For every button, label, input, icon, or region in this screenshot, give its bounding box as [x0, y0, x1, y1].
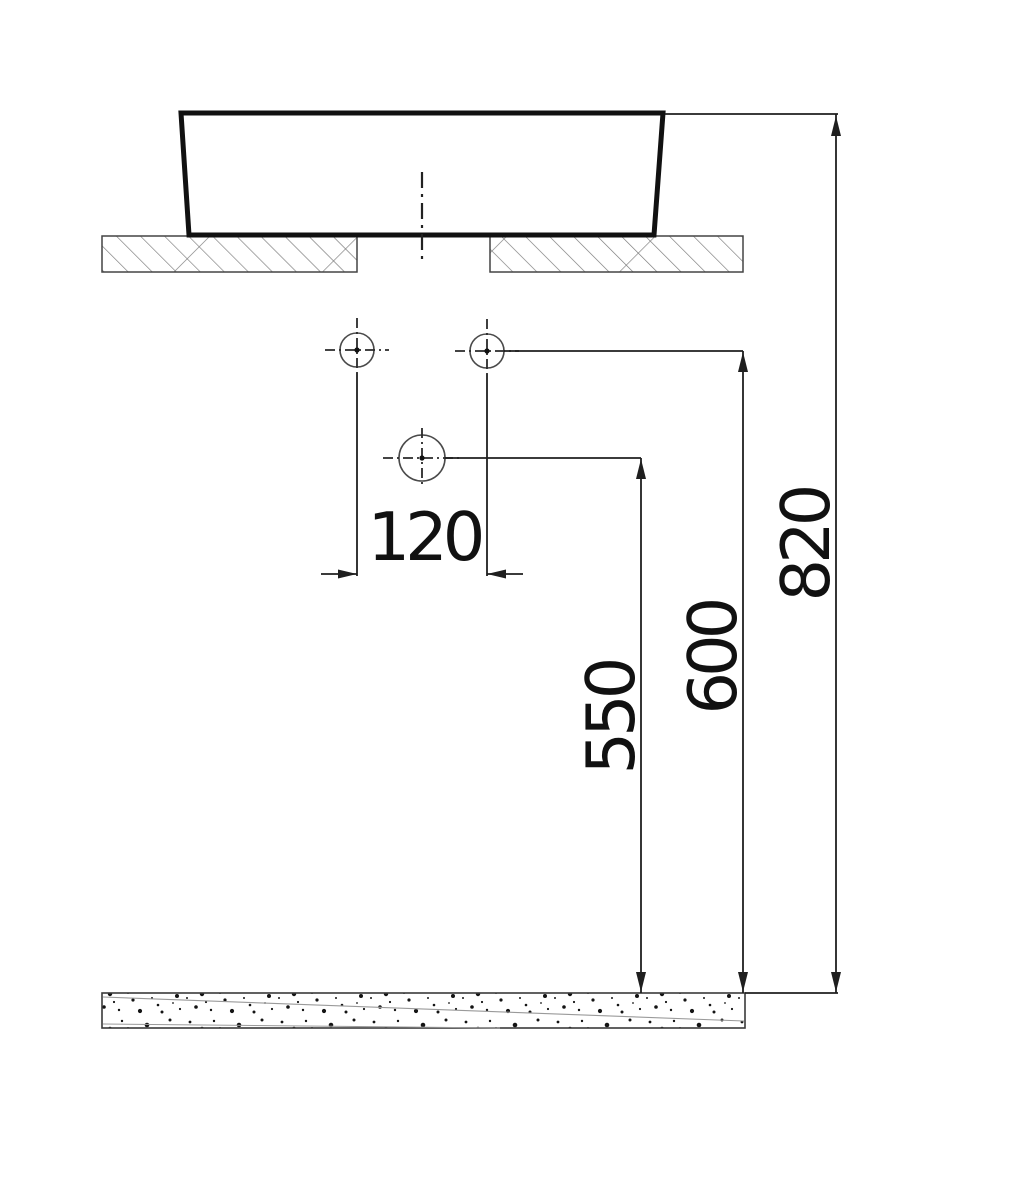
dim-600-arrow-bottom — [738, 972, 748, 992]
dim-label-600: 600 — [674, 600, 752, 714]
hole-marker-right-center-dot — [484, 348, 489, 353]
dim-120-arrow-right — [487, 570, 506, 579]
countertop-right-slab — [490, 236, 743, 272]
hole-marker-left-center-dot — [354, 347, 359, 352]
dim-label-820: 820 — [767, 487, 845, 601]
drawing-svg: 120 550 600 820 — [0, 0, 1009, 1202]
dim-label-550: 550 — [572, 660, 650, 774]
dim-600-arrow-top — [738, 352, 748, 372]
technical-drawing-canvas: 120 550 600 820 — [0, 0, 1009, 1202]
hole-marker-left — [325, 318, 389, 373]
dim-550-arrow-bottom — [636, 972, 646, 992]
drain-marker-center-dot — [419, 455, 424, 460]
countertop-right-outline — [490, 236, 743, 272]
hole-marker-right — [455, 319, 519, 374]
dim-820-arrow-bottom — [831, 972, 841, 992]
dim-550-arrow-top — [636, 459, 646, 479]
countertop-left-outline — [102, 236, 357, 272]
dim-120-arrow-left — [338, 570, 357, 579]
dim-label-120: 120 — [368, 498, 482, 576]
dim-820-arrow-top — [831, 116, 841, 136]
floor-slab — [102, 993, 838, 1028]
floor-slab-outline — [102, 993, 745, 1028]
countertop-left-slab — [102, 236, 357, 272]
